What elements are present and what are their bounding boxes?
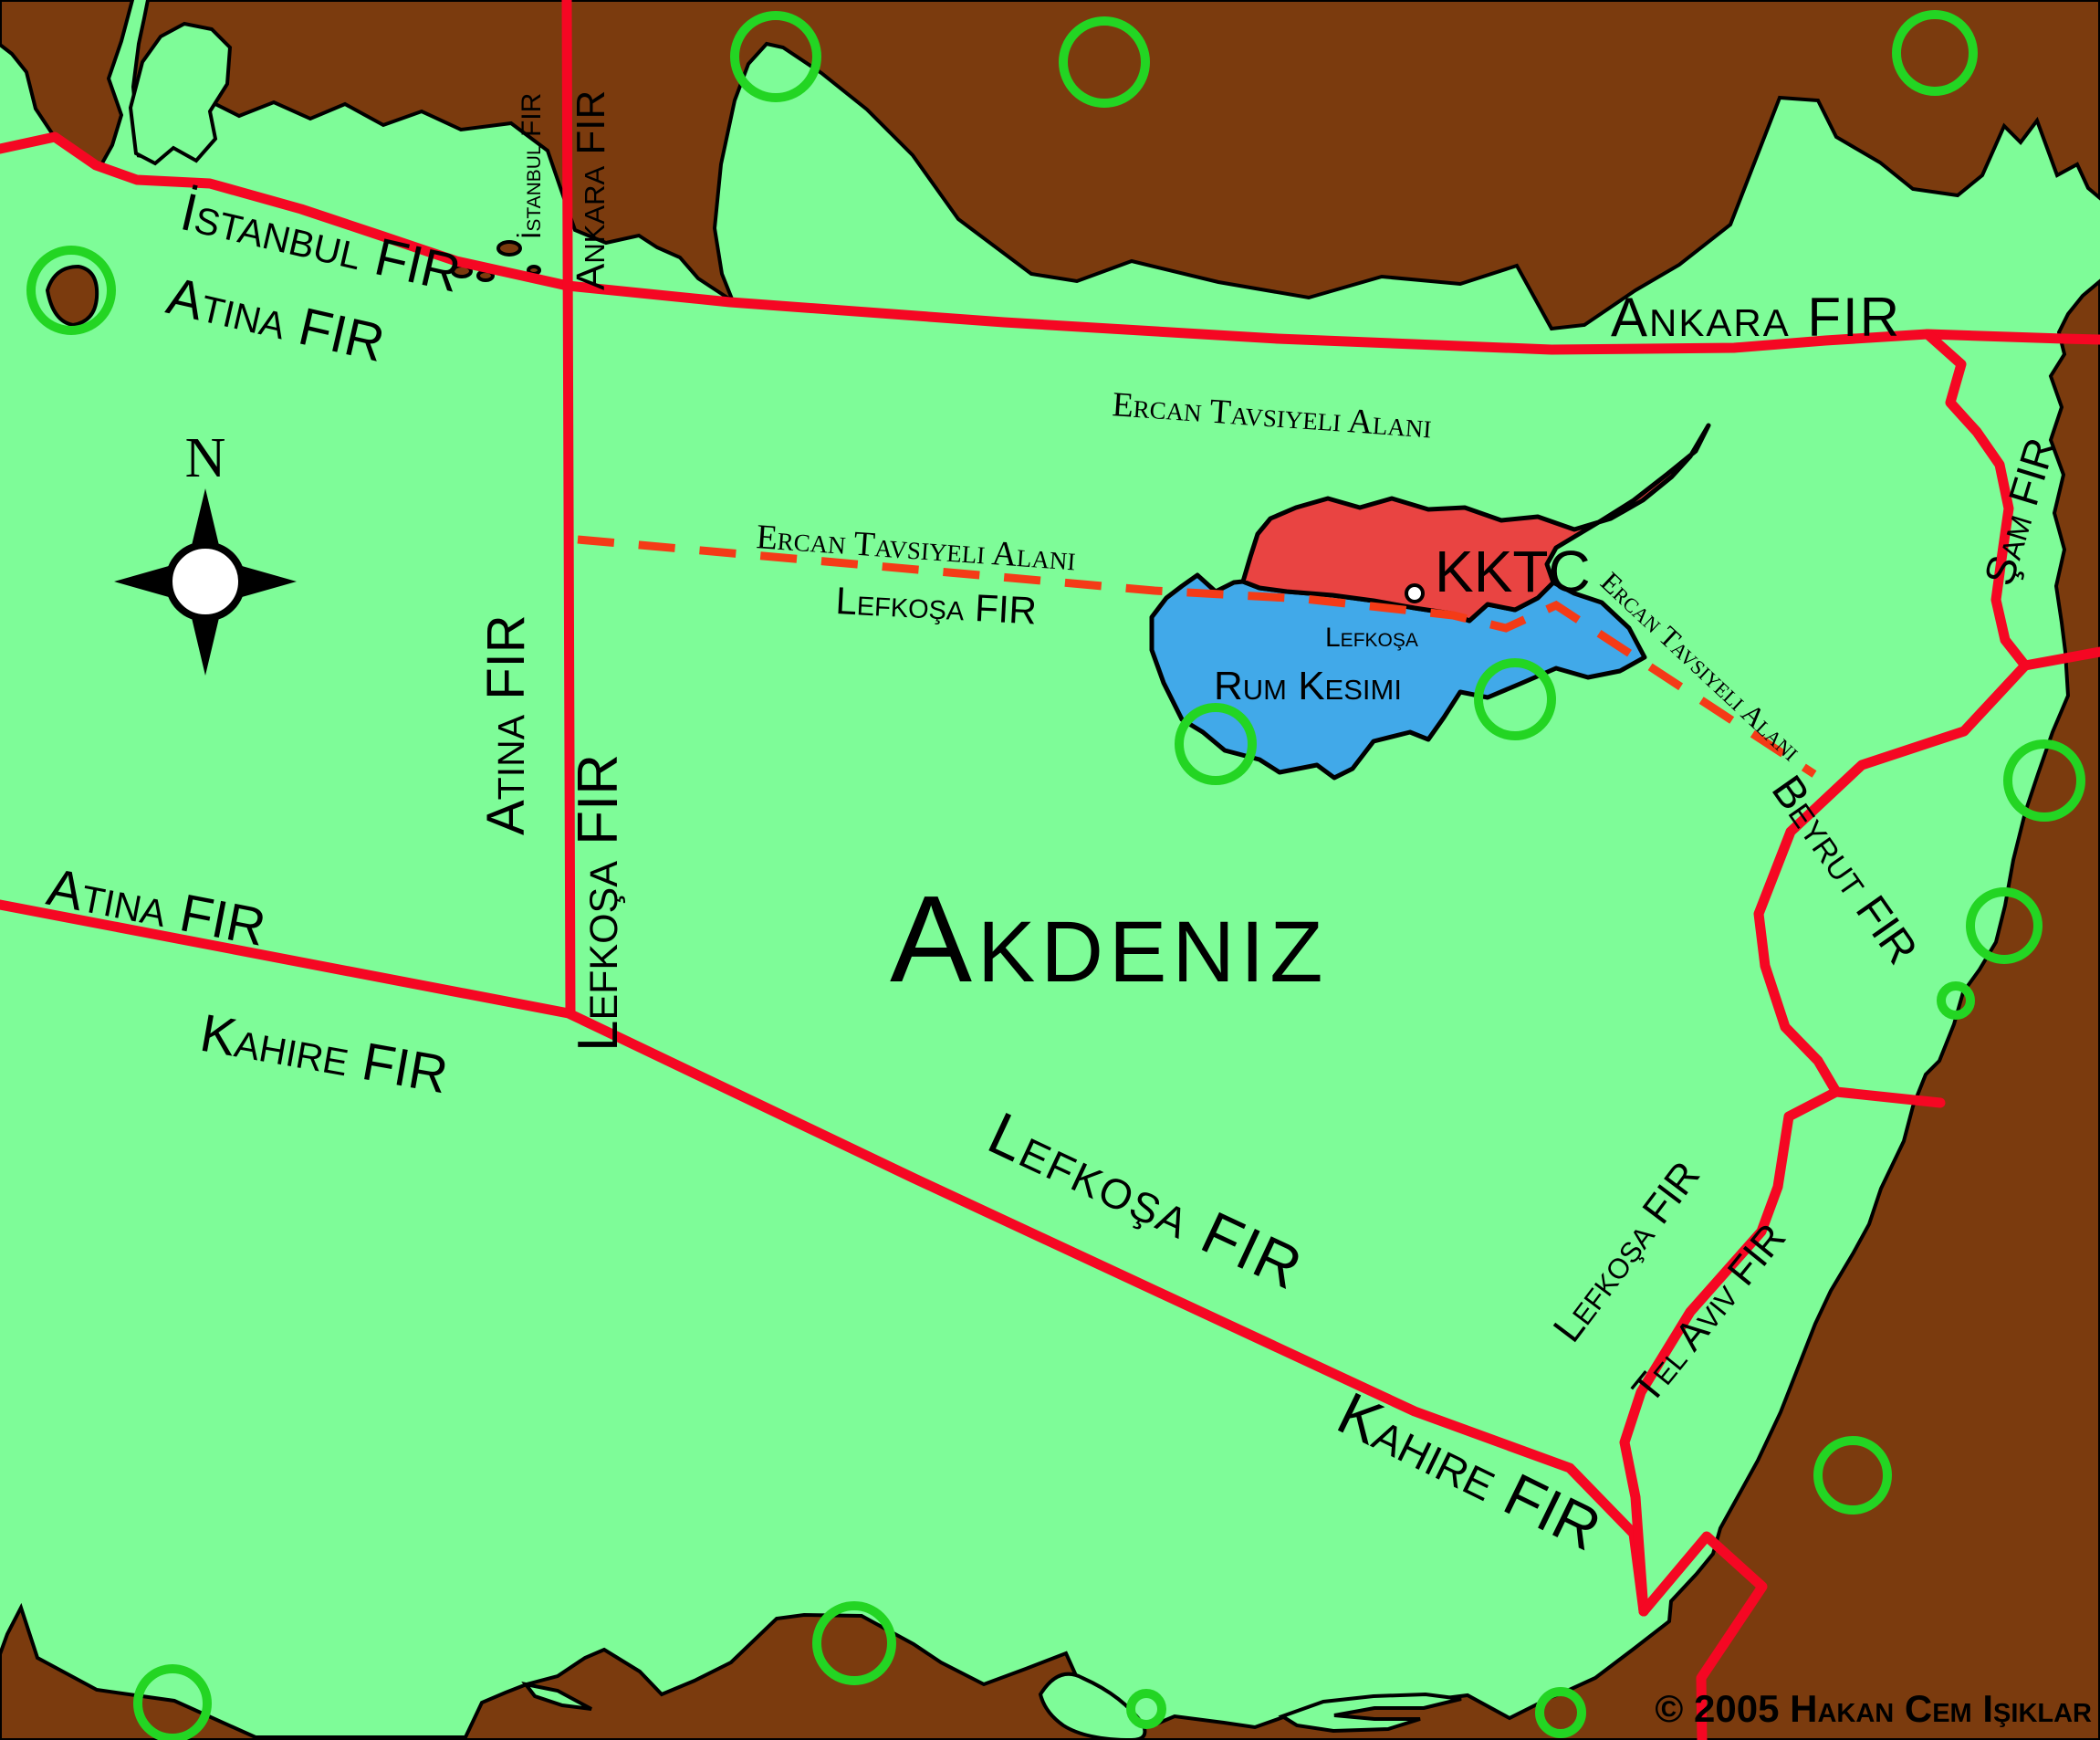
label-lefkosa-city: Lefkoşa [1325, 623, 1418, 653]
fir-map-canvas: N İstanbul FIR Atina FIR İstanbul FIR An… [0, 0, 2100, 1740]
label-lefkosa-fir-big: Lefkoşa FIR [978, 1098, 1313, 1302]
compass-north-label: N [185, 427, 226, 489]
label-ercan-advisory-top: Ercan Tavsiyeli Alanı [1111, 385, 1433, 445]
copyright-notice: © 2005 Hakan Cem Işıklar [1655, 1687, 2092, 1730]
label-kahire-fir-left: Kahire FIR [196, 1003, 453, 1106]
waypoint-circle [1941, 986, 1970, 1015]
waypoint-circle [1131, 1693, 1162, 1724]
compass-rose: N [114, 427, 297, 676]
label-atina-fir-top: Atina FIR [162, 266, 390, 373]
island-limnos [47, 267, 97, 325]
label-lefkosa-fir-vertical: Lefkoşa FIR [567, 754, 630, 1052]
label-istanbul-fir-vertical: İstanbul FIR [517, 93, 547, 239]
label-lefkosa-fir-small: Lefkoşa FIR [835, 579, 1038, 632]
label-ankara-fir-vertical: Ankara FIR [569, 90, 613, 290]
island-small-3 [498, 242, 520, 255]
label-beyrut-fir: Beyrut FIR [1762, 767, 1927, 972]
label-atina-fir-left: Atina FIR [43, 857, 271, 958]
fir-map: N İstanbul FIR Atina FIR İstanbul FIR An… [0, 0, 2100, 1740]
lefkosa-city-dot [1406, 585, 1423, 602]
label-ankara-fir-main: Ankara FIR [1611, 287, 1901, 348]
label-rum-kesimi: Rum Kesimi [1214, 664, 1402, 708]
label-atina-fir-vertical: Atina FIR [476, 614, 536, 835]
label-kktc: KKTC [1435, 539, 1591, 604]
label-akdeniz: Akdeniz [890, 870, 1328, 1008]
